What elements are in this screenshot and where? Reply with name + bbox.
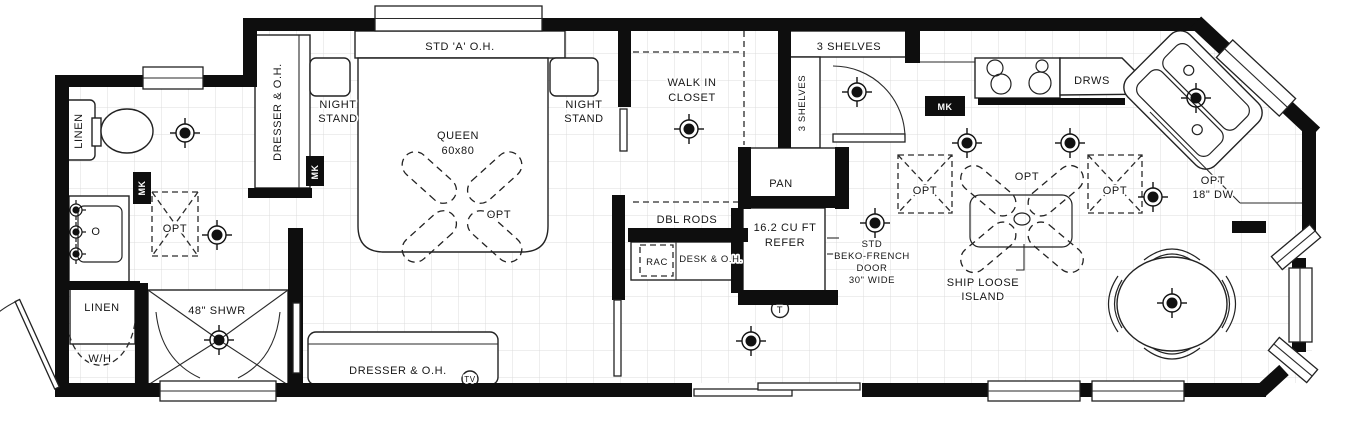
faucet-label: O: [91, 226, 100, 238]
toilet-tank: [92, 118, 101, 146]
night-stand-left-label: NIGHT: [319, 99, 356, 111]
night-stand-left-label: STAND: [318, 113, 357, 125]
refrigerator-label: 16.2 CU FT: [754, 222, 817, 234]
night-stand-left: [310, 58, 350, 96]
shower-label: 48" SHWR: [188, 305, 246, 317]
pantry: [750, 148, 837, 197]
pocket-door: [620, 109, 627, 151]
water-heater-label: W/H: [88, 353, 111, 365]
linen-closet-label: LINEN: [84, 302, 119, 314]
walk-in-closet-label: WALK IN: [667, 77, 716, 89]
night-stand-right: [550, 58, 598, 96]
linen-cabinet-label: LINEN: [73, 113, 85, 148]
refrigerator-note: STD: [862, 239, 883, 250]
optional-box-label: OPT: [163, 223, 187, 235]
linen-closet: [70, 286, 135, 344]
fan-option-label: OPT: [487, 209, 511, 221]
bed-label: QUEEN: [437, 130, 479, 142]
dishwasher-label: OPT: [1201, 175, 1225, 187]
floor-plan-drawing: LINEN O MK OPT LINEN W/H 48" SHWR DRESSE…: [0, 0, 1346, 429]
optional-left-label: OPT: [913, 185, 937, 197]
refrigerator-note: BEKO-FRENCH: [834, 251, 910, 262]
window: [160, 381, 276, 401]
shelves-top-label: 3 SHELVES: [817, 41, 882, 53]
island-label: SHIP LOOSE: [947, 277, 1019, 289]
bedroom-living-wall: [612, 195, 625, 300]
optional-right-label: OPT: [1103, 185, 1127, 197]
pocket-door: [293, 303, 300, 373]
sliding-patio-door: [694, 383, 860, 396]
pocket-door: [614, 300, 621, 376]
window: [143, 67, 203, 89]
tv-label: TV: [464, 375, 475, 384]
refrigerator-label: REFER: [765, 237, 805, 249]
desk-label: DESK & O.H.: [679, 254, 743, 265]
optional-island-label: OPT: [1015, 171, 1039, 183]
shelves-side-label: 3 SHELVES: [797, 75, 808, 131]
rods-label: DBL RODS: [657, 214, 718, 226]
refrigerator-note: DOOR: [857, 263, 888, 274]
floor-plan-page: LINEN O MK OPT LINEN W/H 48" SHWR DRESSE…: [0, 0, 1346, 429]
dresser-left-label: DRESSER & O.H.: [272, 63, 284, 161]
vent-marker-label: MK: [938, 102, 953, 112]
night-stand-right-label: NIGHT: [565, 99, 602, 111]
bay-window: [1289, 268, 1312, 342]
entry-door: [0, 300, 59, 389]
rac-label: RAC: [646, 257, 668, 268]
vent-marker-label: MK: [137, 181, 147, 196]
toilet: [101, 109, 153, 153]
dresser-bottom-label: DRESSER & O.H.: [349, 365, 447, 377]
drawers-label: DRWS: [1074, 75, 1110, 87]
bed-label: 60x80: [442, 145, 475, 157]
night-stand-right-label: STAND: [564, 113, 603, 125]
thermostat-label: T: [777, 305, 783, 316]
pantry-label: PAN: [769, 178, 793, 190]
island-label: ISLAND: [961, 291, 1004, 303]
window: [988, 381, 1080, 401]
dishwasher-label: 18" DW: [1192, 189, 1233, 201]
window: [375, 6, 542, 31]
refrigerator-note: 30" WIDE: [849, 275, 895, 286]
overhead-cabinet-label: STD 'A' O.H.: [425, 41, 494, 53]
refrigerator: [743, 208, 839, 293]
counter-front-edge: [978, 98, 1125, 105]
walk-in-closet-label: CLOSET: [668, 92, 716, 104]
window: [1092, 381, 1184, 401]
vent-marker-label: MK: [310, 165, 320, 180]
